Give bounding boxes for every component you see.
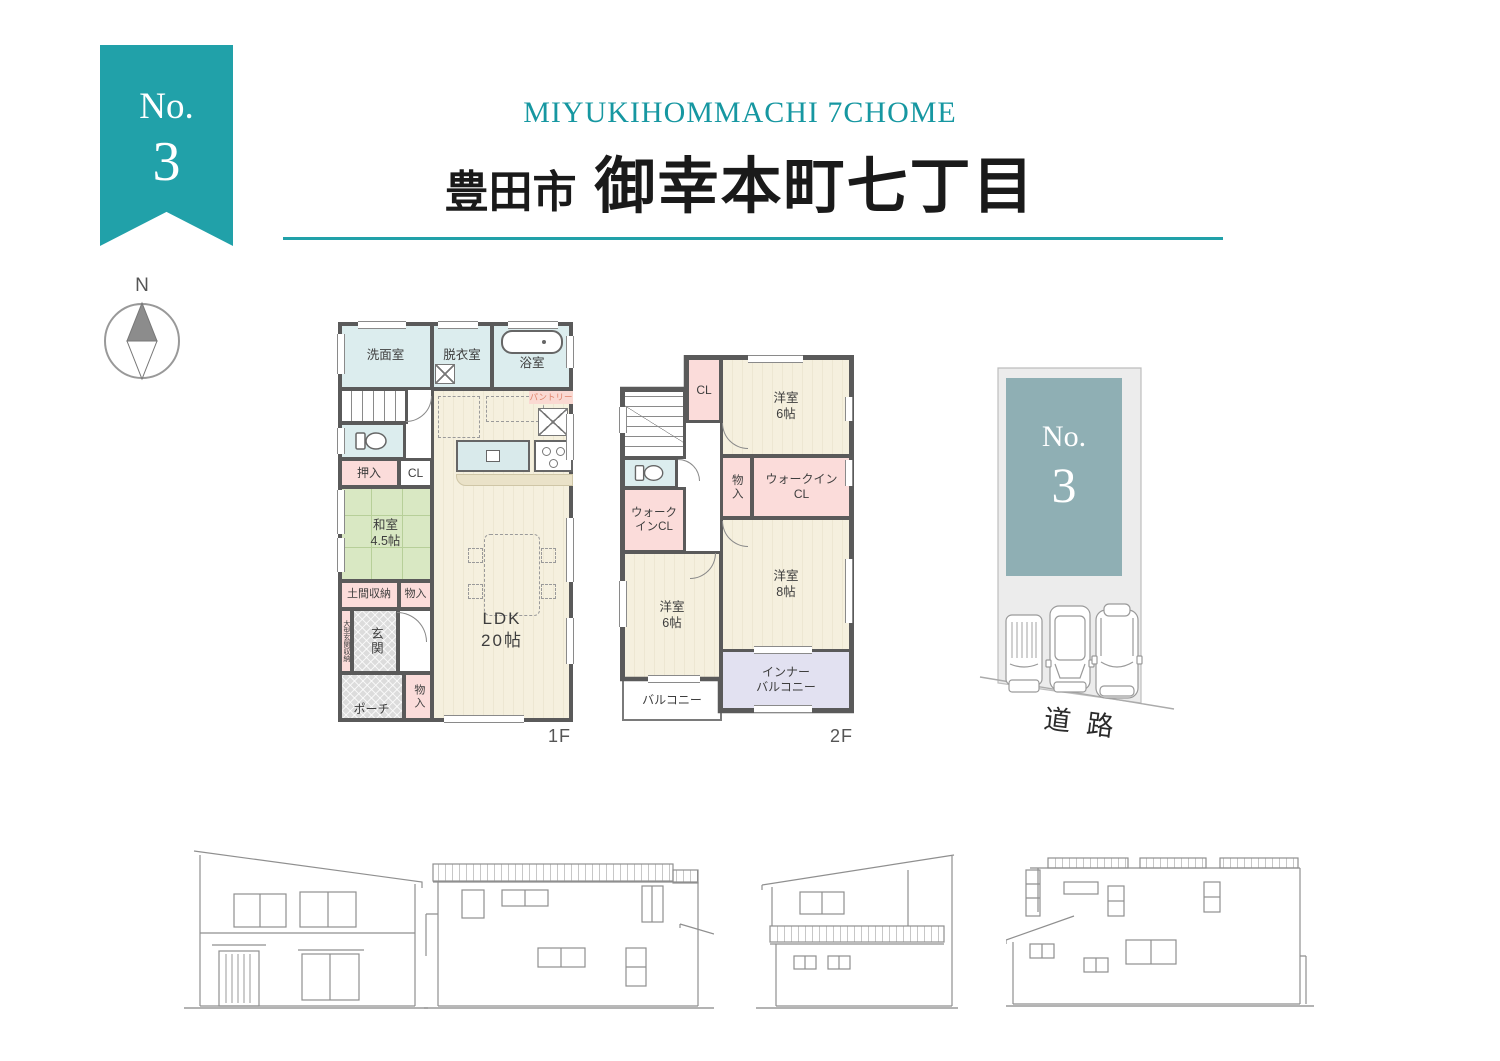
window-marker [566,414,574,460]
washer-icon [435,364,455,384]
floor-plan-2f: ウォーク インCL CL 洋室 6帖 物入 ウォークイン CL 洋室 8帖 洋室… [620,355,854,725]
kitchen-counter [456,474,573,486]
title-underline [283,237,1223,240]
floor-label-1f: 1F [548,726,571,747]
window-marker [619,407,627,433]
room-label: 玄関 [367,627,383,656]
car-icon [1006,615,1042,692]
window-marker [566,518,574,582]
room-size-label: 4.5帖 [371,534,401,550]
room-label: パントリー [530,392,573,402]
inner-balcony: インナー バルコニー [720,649,852,711]
window-marker [845,397,853,421]
site-number: 3 [1052,456,1077,514]
room-doma-storage: 土間収納 [338,580,400,610]
window-marker [845,559,853,623]
window-marker [845,460,853,486]
room-label: 物入 [405,588,427,602]
romaji-subtitle: MIYUKIHOMMACHI 7CHOME [420,96,1060,130]
ribbon-no-label: No. [139,85,193,128]
room-label: インナー [762,665,810,680]
room-porch: ポーチ [338,672,405,722]
room-label: 土間収納 [347,588,391,602]
bathtub-icon [500,329,564,355]
elevation-south [182,830,430,1012]
window-marker [748,355,803,363]
elevation-west [756,828,958,1012]
dashed-furniture [438,396,480,438]
window-marker [438,321,478,329]
window-marker [358,321,406,329]
room-label: ウォーク [631,506,677,520]
flyer-page: No. 3 MIYUKIHOMMACHI 7CHOME 豊田市 御幸本町七丁目 … [0,0,1500,1061]
floor-plan-1f: 洗面室 脱衣室 浴室 押入 CL 和室 4.5帖 [338,322,573,722]
room-label: CL [696,383,711,398]
room-wic-right: ウォークイン CL [751,455,852,519]
room-label: 物入 [411,684,425,710]
window-marker [754,705,812,713]
room-size-label: 6帖 [776,407,795,423]
elevation-north [1006,824,1314,1012]
car-icon [1092,604,1142,698]
window-marker [566,336,574,368]
room-oshiire: 押入 [338,458,400,488]
room-label: 物入 [729,474,743,501]
room-label: 脱衣室 [443,348,481,364]
room-label: インCL [635,520,673,534]
room-label: ポーチ [353,702,389,717]
toilet-icon [354,430,390,452]
pantry-label: パントリー [529,391,573,404]
window-marker [337,538,345,572]
room-monoiri-mid: 物入 [398,580,433,610]
window-marker [444,715,524,723]
window-marker [337,428,345,454]
compass-north-label: N [135,276,149,296]
room-label: 洋室 [659,600,684,616]
room-label: ウォークイン [765,472,837,487]
site-plot-number-block: No. 3 [1006,378,1122,576]
room-toilet-1f [338,422,406,460]
room-label: 和室 [373,518,398,534]
plot-number-ribbon: No. 3 [100,45,233,246]
room-label: バルコニー [642,693,702,708]
room-closet-2f: CL [686,357,722,423]
room-washitsu: 和室 4.5帖 [338,486,433,582]
elevation-east [424,826,714,1012]
window-marker [337,490,345,534]
toilet-icon [633,463,667,483]
room-monoiri-2f: 物入 [720,455,753,519]
dining-chair [541,584,556,599]
kitchen-sink [456,440,530,472]
room-label: 洋室 [773,391,798,407]
room-toilet-2f [622,457,678,489]
title-city: 豊田市 [444,156,576,220]
pantry-shelf-icon [538,408,568,436]
window-marker [337,334,345,374]
room-monoiri-bottom: 物入 [403,672,433,722]
ribbon-number: 3 [153,130,181,194]
room-bathroom: 浴室 [491,322,573,390]
car-icon [1046,606,1094,692]
site-no-label: No. [1042,420,1086,454]
title-district: 御幸本町七丁目 [594,136,1035,225]
room-label: 洋室 [773,569,798,585]
dining-chair [541,548,556,563]
room-label: バルコニー [756,680,816,695]
room-closet-1f: CL [398,458,433,488]
room-washroom: 洗面室 [338,322,433,390]
window-marker [508,321,558,329]
door-arc [406,396,432,422]
dining-table [484,534,540,616]
window-marker [619,581,627,627]
dining-chair [468,584,483,599]
door-arc [678,459,700,481]
room-label: CL [408,466,423,481]
balcony: バルコニー [622,679,722,721]
room-label: 浴室 [519,356,544,372]
room-label: CL [794,487,809,502]
ldk-label: LDK 20帖 [442,608,562,652]
window-marker [566,618,574,664]
room-label: 押入 [357,466,381,481]
floor-label-2f: 2F [830,726,853,747]
window-marker [648,675,700,683]
room-size-label: 6帖 [662,616,681,632]
window-marker [754,646,812,654]
room-size-label: 8帖 [776,585,795,601]
compass-icon: N [96,276,188,384]
staircase-2f [622,389,686,459]
room-label: 洗面室 [367,348,405,364]
room-genkan: 玄関 [351,608,399,674]
room-wic-left: ウォーク インCL [622,487,686,553]
staircase-1f [338,388,408,424]
room-label: 大型玄関収納 [341,620,350,662]
page-title: 豊田市 御幸本町七丁目 [300,136,1180,225]
dining-chair [468,548,483,563]
